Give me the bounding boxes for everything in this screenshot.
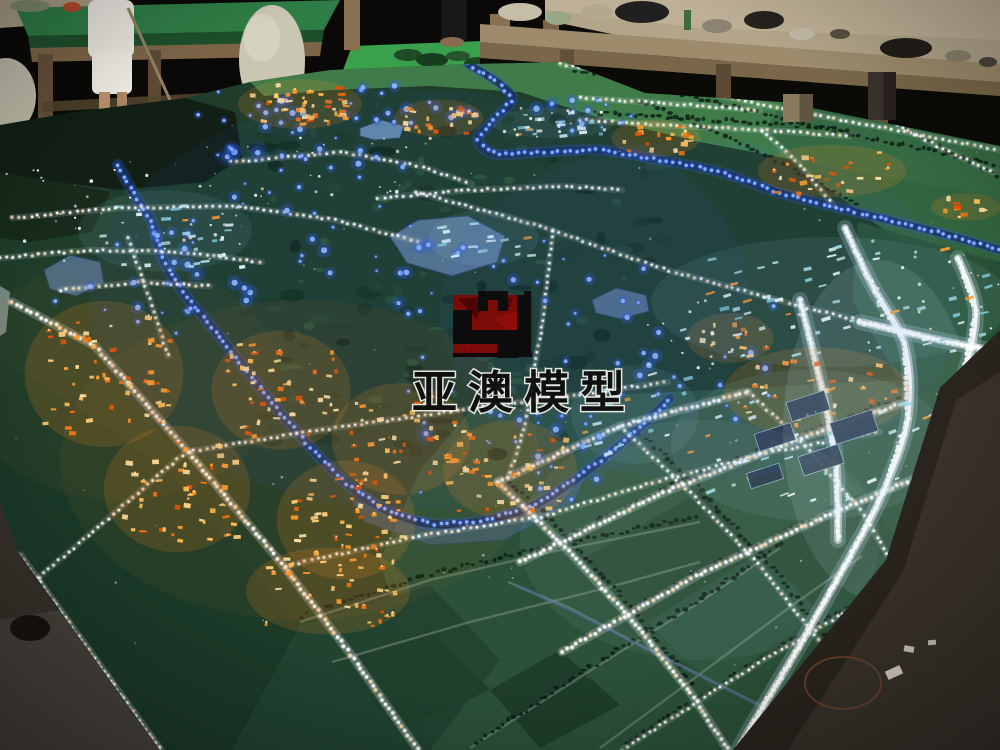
logo-glyph-bar <box>517 295 531 357</box>
logo-glyph-nub <box>524 291 531 299</box>
photo-of-city-scale-model: 亚澳模型 <box>0 0 1000 750</box>
watermark-logo <box>453 291 532 358</box>
scale-model-scene: 亚澳模型 <box>0 0 1000 750</box>
watermark-text: 亚澳模型 <box>412 366 636 419</box>
